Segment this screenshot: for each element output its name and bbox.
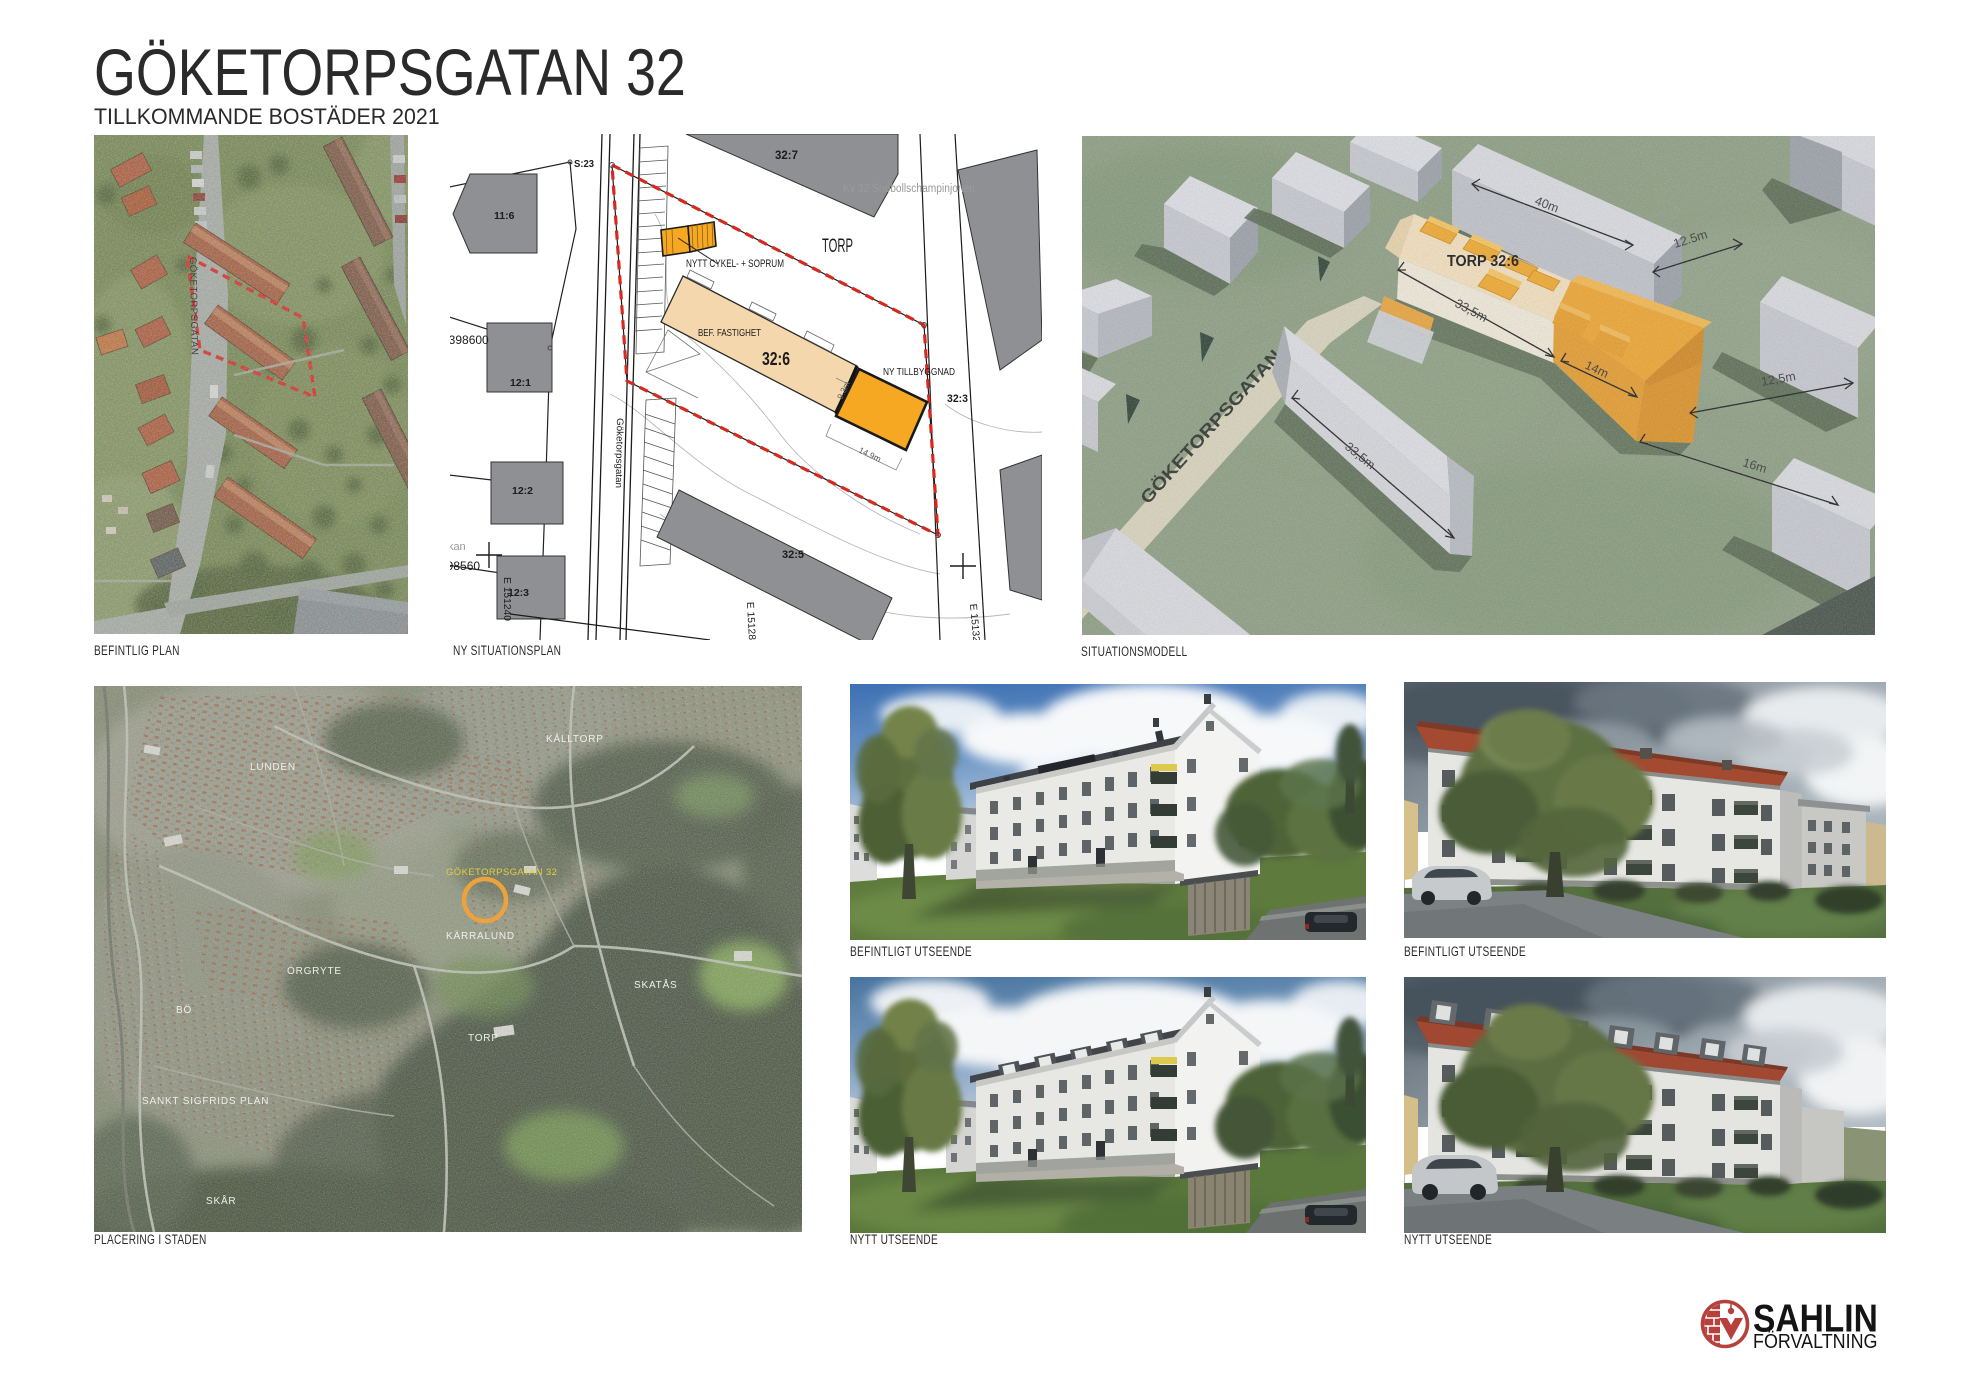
svg-text:32:6: 32:6: [762, 349, 790, 369]
svg-text:KÄRRALUND: KÄRRALUND: [446, 930, 515, 942]
svg-text:BÖ: BÖ: [176, 1004, 192, 1016]
svg-text:ickan: ickan: [450, 541, 466, 553]
svg-text:TORP: TORP: [822, 236, 853, 257]
svg-text:KÅLLTORP: KÅLLTORP: [546, 732, 604, 745]
svg-text:E 151280: E 151280: [744, 602, 757, 640]
svg-text:BEF. FASTIGHET: BEF. FASTIGHET: [698, 327, 761, 339]
svg-text:NY TILLBYGGNAD: NY TILLBYGGNAD: [883, 366, 955, 378]
svg-text:Kv 32 Snöbollschampinjonen: Kv 32 Snöbollschampinjonen: [843, 183, 975, 195]
svg-text:SKÅR: SKÅR: [206, 1194, 236, 1207]
svg-text:Göketorpsgatan: Göketorpsgatan: [613, 418, 625, 488]
svg-text:SANKT SIGFRIDS PLAN: SANKT SIGFRIDS PLAN: [142, 1096, 269, 1107]
svg-text:E 151240: E 151240: [501, 577, 512, 621]
svg-text:12:2: 12:2: [512, 485, 533, 497]
svg-text:SKATÅS: SKATÅS: [634, 978, 678, 991]
svg-text:14.9m: 14.9m: [857, 445, 883, 464]
svg-text:E 151320: E 151320: [967, 603, 982, 640]
svg-text:TORP: TORP: [468, 1033, 499, 1044]
svg-text:GÖKETORPSGATAN 32: GÖKETORPSGATAN 32: [446, 867, 557, 878]
svg-text:6398600: 6398600: [450, 333, 489, 347]
svg-text:FÖRVALTNING: FÖRVALTNING: [1753, 1331, 1878, 1353]
svg-text:S:23: S:23: [574, 158, 594, 170]
svg-text:12:1: 12:1: [510, 377, 531, 389]
svg-text:LUNDEN: LUNDEN: [250, 762, 296, 773]
svg-text:ÖRGRYTE: ÖRGRYTE: [287, 965, 342, 977]
svg-text:11:6: 11:6: [494, 210, 515, 222]
svg-text:32:7: 32:7: [775, 150, 798, 162]
svg-text:32:5: 32:5: [782, 549, 804, 561]
svg-text:32:3: 32:3: [947, 393, 968, 405]
svg-text:398560: 398560: [450, 559, 480, 573]
svg-text:NYTT CYKEL- + SOPRUM: NYTT CYKEL- + SOPRUM: [686, 258, 784, 270]
